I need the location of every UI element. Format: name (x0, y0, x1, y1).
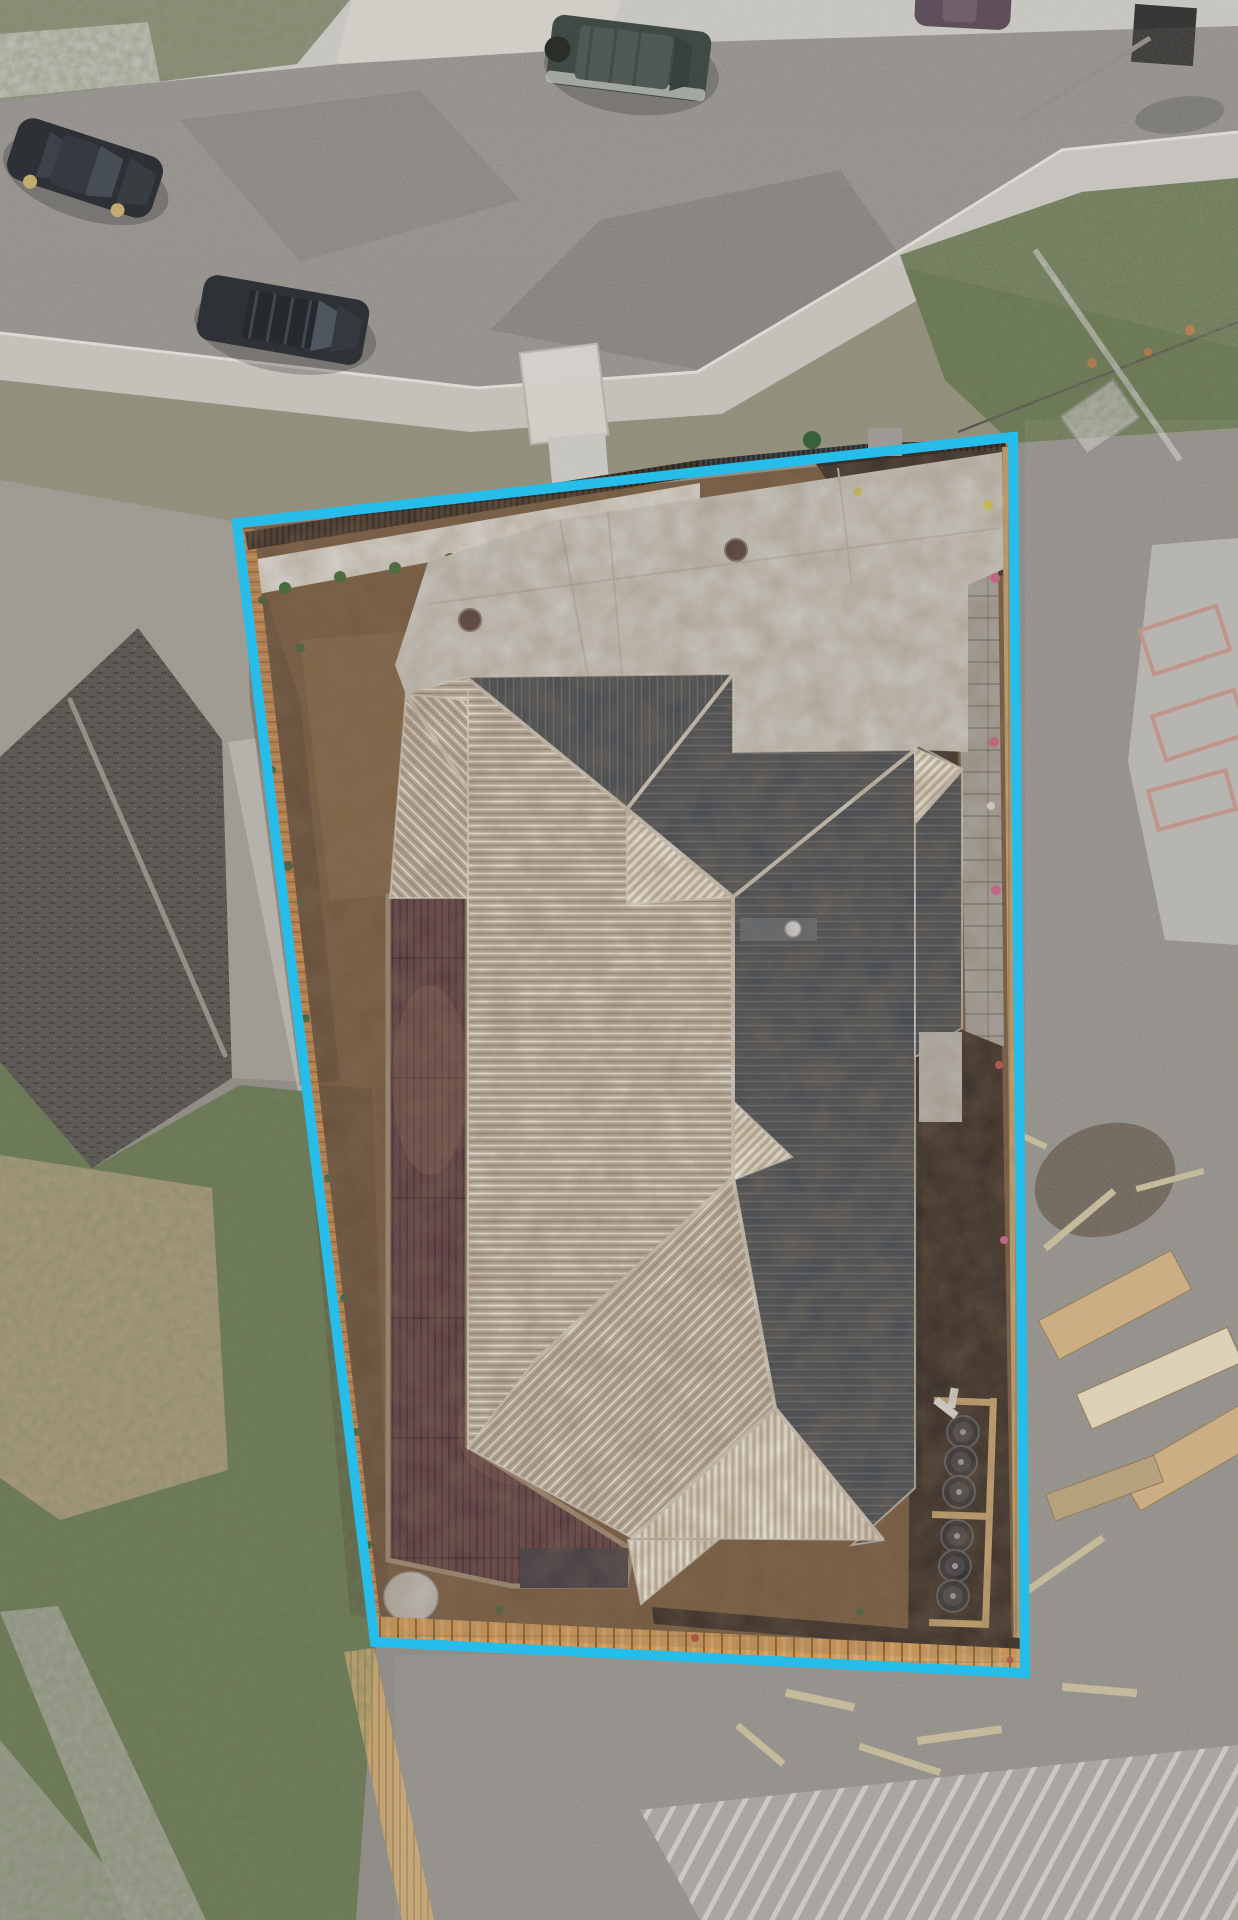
aerial-photo-canvas (0, 0, 1238, 1920)
aerial-photo (0, 0, 1238, 1920)
photo-grain (0, 0, 1238, 1920)
